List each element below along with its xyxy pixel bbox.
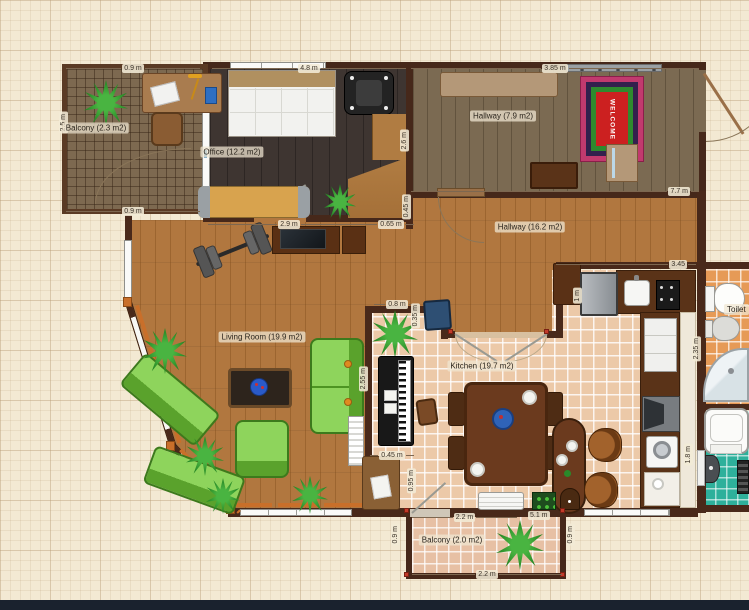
stove-knob bbox=[670, 298, 673, 301]
dim-kitchen-door-w: 0.45 m bbox=[370, 450, 414, 460]
bidet-bowl[interactable] bbox=[712, 316, 740, 341]
blue-bin[interactable] bbox=[423, 299, 452, 331]
plate bbox=[470, 462, 485, 477]
office-sofa-arm-right bbox=[298, 186, 310, 218]
curtain-rod-bottom[interactable] bbox=[232, 503, 364, 507]
dim-balcony-top: 0.9 m bbox=[66, 63, 200, 73]
dim-balcony2-left: 0.9 m bbox=[391, 524, 400, 546]
black-table-top bbox=[356, 80, 382, 106]
washer-door bbox=[653, 441, 671, 459]
paper-sheet[interactable] bbox=[370, 475, 392, 500]
ac-unit[interactable] bbox=[478, 492, 524, 510]
living-left-window[interactable] bbox=[124, 240, 132, 298]
lamp-knob bbox=[344, 360, 352, 368]
decor-plate[interactable] bbox=[250, 378, 268, 396]
wall-node[interactable] bbox=[404, 572, 409, 577]
bowl-dot bbox=[499, 415, 503, 419]
bar-stool[interactable] bbox=[584, 472, 618, 508]
wall-node[interactable] bbox=[448, 329, 453, 334]
welcome-text: WELCOME bbox=[609, 99, 616, 140]
armchair[interactable] bbox=[235, 420, 289, 478]
lamp-knob bbox=[344, 398, 352, 406]
dim-toilet-left: 2.35 m bbox=[692, 336, 701, 361]
table-dot bbox=[384, 106, 388, 110]
mat-center: WELCOME bbox=[596, 92, 628, 146]
kitchen-sink[interactable] bbox=[624, 280, 650, 306]
blue-bowl[interactable] bbox=[492, 408, 514, 430]
room-label-living: Living Room (19.9 m2) bbox=[219, 332, 306, 343]
bathtub-inner bbox=[710, 414, 743, 442]
bath-radiator[interactable] bbox=[737, 460, 749, 494]
room-label-hallway-small: Hallway (7.9 m2) bbox=[470, 111, 536, 122]
sink-faucet bbox=[634, 275, 639, 281]
dim-kitchen-nook-h: 0.35 m bbox=[411, 303, 420, 328]
room-label-kitchen: Kitchen (19.7 m2) bbox=[447, 361, 516, 372]
dim-kitchen-top: 3.45 bbox=[556, 259, 696, 269]
dishwasher[interactable] bbox=[644, 318, 677, 372]
mat-ring-green: WELCOME bbox=[591, 87, 633, 151]
dim-kitchen-bottom: 5.1 m bbox=[528, 511, 550, 520]
stove-knob bbox=[660, 298, 663, 301]
office-sofa[interactable] bbox=[198, 186, 310, 218]
curtain-bracket bbox=[123, 297, 132, 307]
room-label-toilet: Toilet bbox=[724, 304, 749, 315]
dim-balcony2-bottom: 2.2 m bbox=[412, 569, 562, 579]
bottom-bar bbox=[0, 600, 749, 610]
room-label-balcony-bottom: Balcony (2.0 m2) bbox=[419, 535, 485, 546]
kitchen-bottom-window[interactable] bbox=[584, 509, 670, 516]
cabinet-door-knob bbox=[568, 500, 571, 503]
floorplan-canvas: WELCOME bbox=[0, 0, 749, 610]
wall-node[interactable] bbox=[404, 508, 409, 513]
piano-stool[interactable] bbox=[415, 398, 438, 427]
decor-dot bbox=[255, 383, 258, 386]
wall-node[interactable] bbox=[560, 508, 565, 513]
bathtub-ledge bbox=[710, 444, 742, 454]
bathroom-door-leaf[interactable] bbox=[697, 450, 705, 486]
dim-office-bottom: 2.9 m bbox=[208, 219, 370, 229]
stove-knob bbox=[660, 286, 663, 289]
dim-kitchen-left: 2.55 m bbox=[359, 366, 368, 391]
dim-office-right: 2.6 m bbox=[400, 130, 409, 152]
dim-balcony-bottom: 0.9 m bbox=[66, 206, 200, 216]
dim-office-right-small: 0.45 m bbox=[402, 194, 411, 219]
plate bbox=[652, 478, 664, 490]
sheet-music bbox=[384, 403, 397, 414]
shoe-cabinet-glass bbox=[612, 148, 615, 178]
wall-node[interactable] bbox=[544, 329, 549, 334]
decor-dot bbox=[261, 386, 264, 389]
entrance-opening[interactable] bbox=[699, 70, 706, 132]
plate bbox=[566, 440, 578, 452]
bar-stool[interactable] bbox=[588, 428, 622, 462]
shoe-cabinet[interactable] bbox=[606, 144, 638, 182]
dining-chair[interactable] bbox=[448, 436, 465, 470]
dim-fridge: 1 m bbox=[573, 288, 582, 304]
dim-office-bottom-small: 0.65 m bbox=[368, 219, 414, 229]
room-label-office: Office (12.2 m2) bbox=[200, 147, 263, 158]
entrance-door-arc[interactable] bbox=[706, 72, 749, 142]
dim-bathroom-right: 1.8 m bbox=[684, 444, 693, 466]
dim-balcony2-top: 2.2 m bbox=[412, 512, 517, 522]
dim-office-top: 4.8 m bbox=[212, 63, 406, 73]
bed-mattress-tufting bbox=[230, 88, 334, 135]
dim-balcony2-right: 0.9 m bbox=[566, 524, 575, 546]
room-label-hallway-large: Hallway (16.2 m2) bbox=[495, 222, 565, 233]
dim-kitchen-door-h: 0.95 m bbox=[407, 468, 416, 493]
media-box[interactable] bbox=[342, 226, 366, 254]
dim-hallway-bottom: 7.7 m bbox=[411, 186, 699, 196]
green-apple bbox=[564, 470, 571, 477]
kitchen-counter-white[interactable] bbox=[644, 472, 680, 506]
stove[interactable] bbox=[656, 280, 680, 310]
plate bbox=[522, 390, 537, 405]
table-dot bbox=[350, 76, 354, 80]
shower-drain bbox=[728, 368, 734, 374]
sheet-music bbox=[384, 390, 397, 401]
fridge[interactable] bbox=[580, 272, 618, 316]
wall-bath-bottom[interactable] bbox=[704, 505, 749, 512]
seedling-tray[interactable] bbox=[532, 492, 556, 510]
dining-chair[interactable] bbox=[448, 392, 465, 426]
bar-cabinet-door[interactable] bbox=[560, 488, 580, 510]
wall-toilet-top[interactable] bbox=[704, 262, 749, 269]
stove-knob bbox=[670, 286, 673, 289]
sideboard[interactable] bbox=[440, 72, 558, 97]
dim-hallway-top: 3.85 m bbox=[411, 63, 699, 73]
sink-dot bbox=[709, 466, 713, 470]
living-bottom-window[interactable] bbox=[240, 509, 352, 516]
room-label-balcony-top: Balcony (2.3 m2) bbox=[63, 123, 129, 134]
piano-keys bbox=[398, 360, 411, 442]
office-chair[interactable] bbox=[151, 112, 183, 146]
desk-lamp[interactable] bbox=[188, 74, 202, 78]
blue-book[interactable] bbox=[205, 87, 217, 104]
plate bbox=[556, 454, 568, 466]
table-dot bbox=[350, 106, 354, 110]
table-dot bbox=[384, 76, 388, 80]
hallway-chest[interactable] bbox=[530, 162, 578, 189]
tv-screen[interactable] bbox=[280, 229, 326, 249]
